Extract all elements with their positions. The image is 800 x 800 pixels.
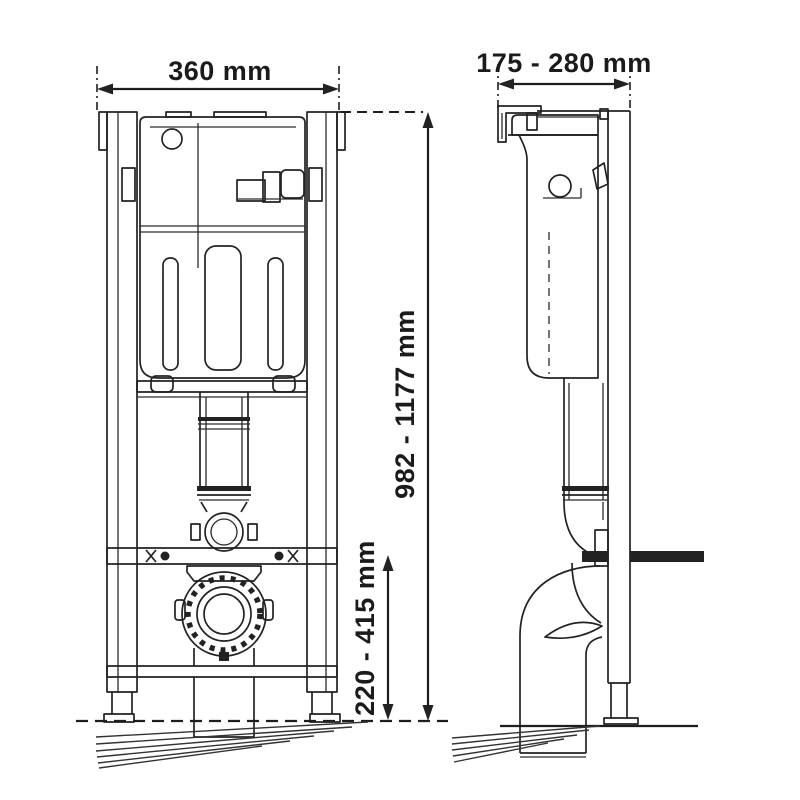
- front-ground: [76, 721, 448, 768]
- arrowhead-down-icon: [383, 704, 394, 720]
- arrowhead-up-icon: [383, 555, 394, 571]
- arrowhead-right-icon: [614, 79, 630, 90]
- arrowhead-left-icon: [498, 79, 514, 90]
- wc-frame-technical-drawing: 360 mm 175 - 280 mm 982 - 1177 mm 220 - …: [0, 0, 800, 800]
- dimension-outlet-height: 220 - 415 mm: [350, 540, 394, 720]
- dimension-label-outlet-height: 220 - 415 mm: [350, 540, 380, 716]
- arrowhead-up-icon: [423, 112, 434, 128]
- dimension-label-frame-width: 360 mm: [168, 56, 272, 86]
- flush-unit-cap: [549, 175, 571, 197]
- front-feet: [104, 692, 340, 722]
- front-outlet-flange: [175, 566, 273, 661]
- front-cistern: [140, 112, 305, 392]
- fixing-rod: [582, 551, 704, 562]
- dimension-label-install-depth: 175 - 280 mm: [476, 48, 652, 78]
- dimension-label-frame-height: 982 - 1177 mm: [390, 309, 420, 499]
- side-flush-pipe: [562, 378, 609, 566]
- side-foot: [604, 718, 638, 724]
- fill-valve-cap: [162, 129, 182, 149]
- arrowhead-left-icon: [97, 84, 113, 95]
- front-drain-pipe: [194, 648, 254, 737]
- dimension-frame-width: 360 mm: [97, 56, 339, 112]
- front-flush-pipe: [191, 392, 257, 551]
- side-outlet-elbow: [520, 563, 602, 757]
- dimension-install-depth: 175 - 280 mm: [476, 48, 652, 111]
- flush-valve-unit: [237, 170, 304, 202]
- side-view: [452, 106, 704, 762]
- technical-drawing-page: 360 mm 175 - 280 mm 982 - 1177 mm 220 - …: [0, 0, 800, 800]
- arrowhead-down-icon: [423, 705, 434, 721]
- side-cistern: [508, 115, 608, 378]
- arrowhead-right-icon: [323, 84, 339, 95]
